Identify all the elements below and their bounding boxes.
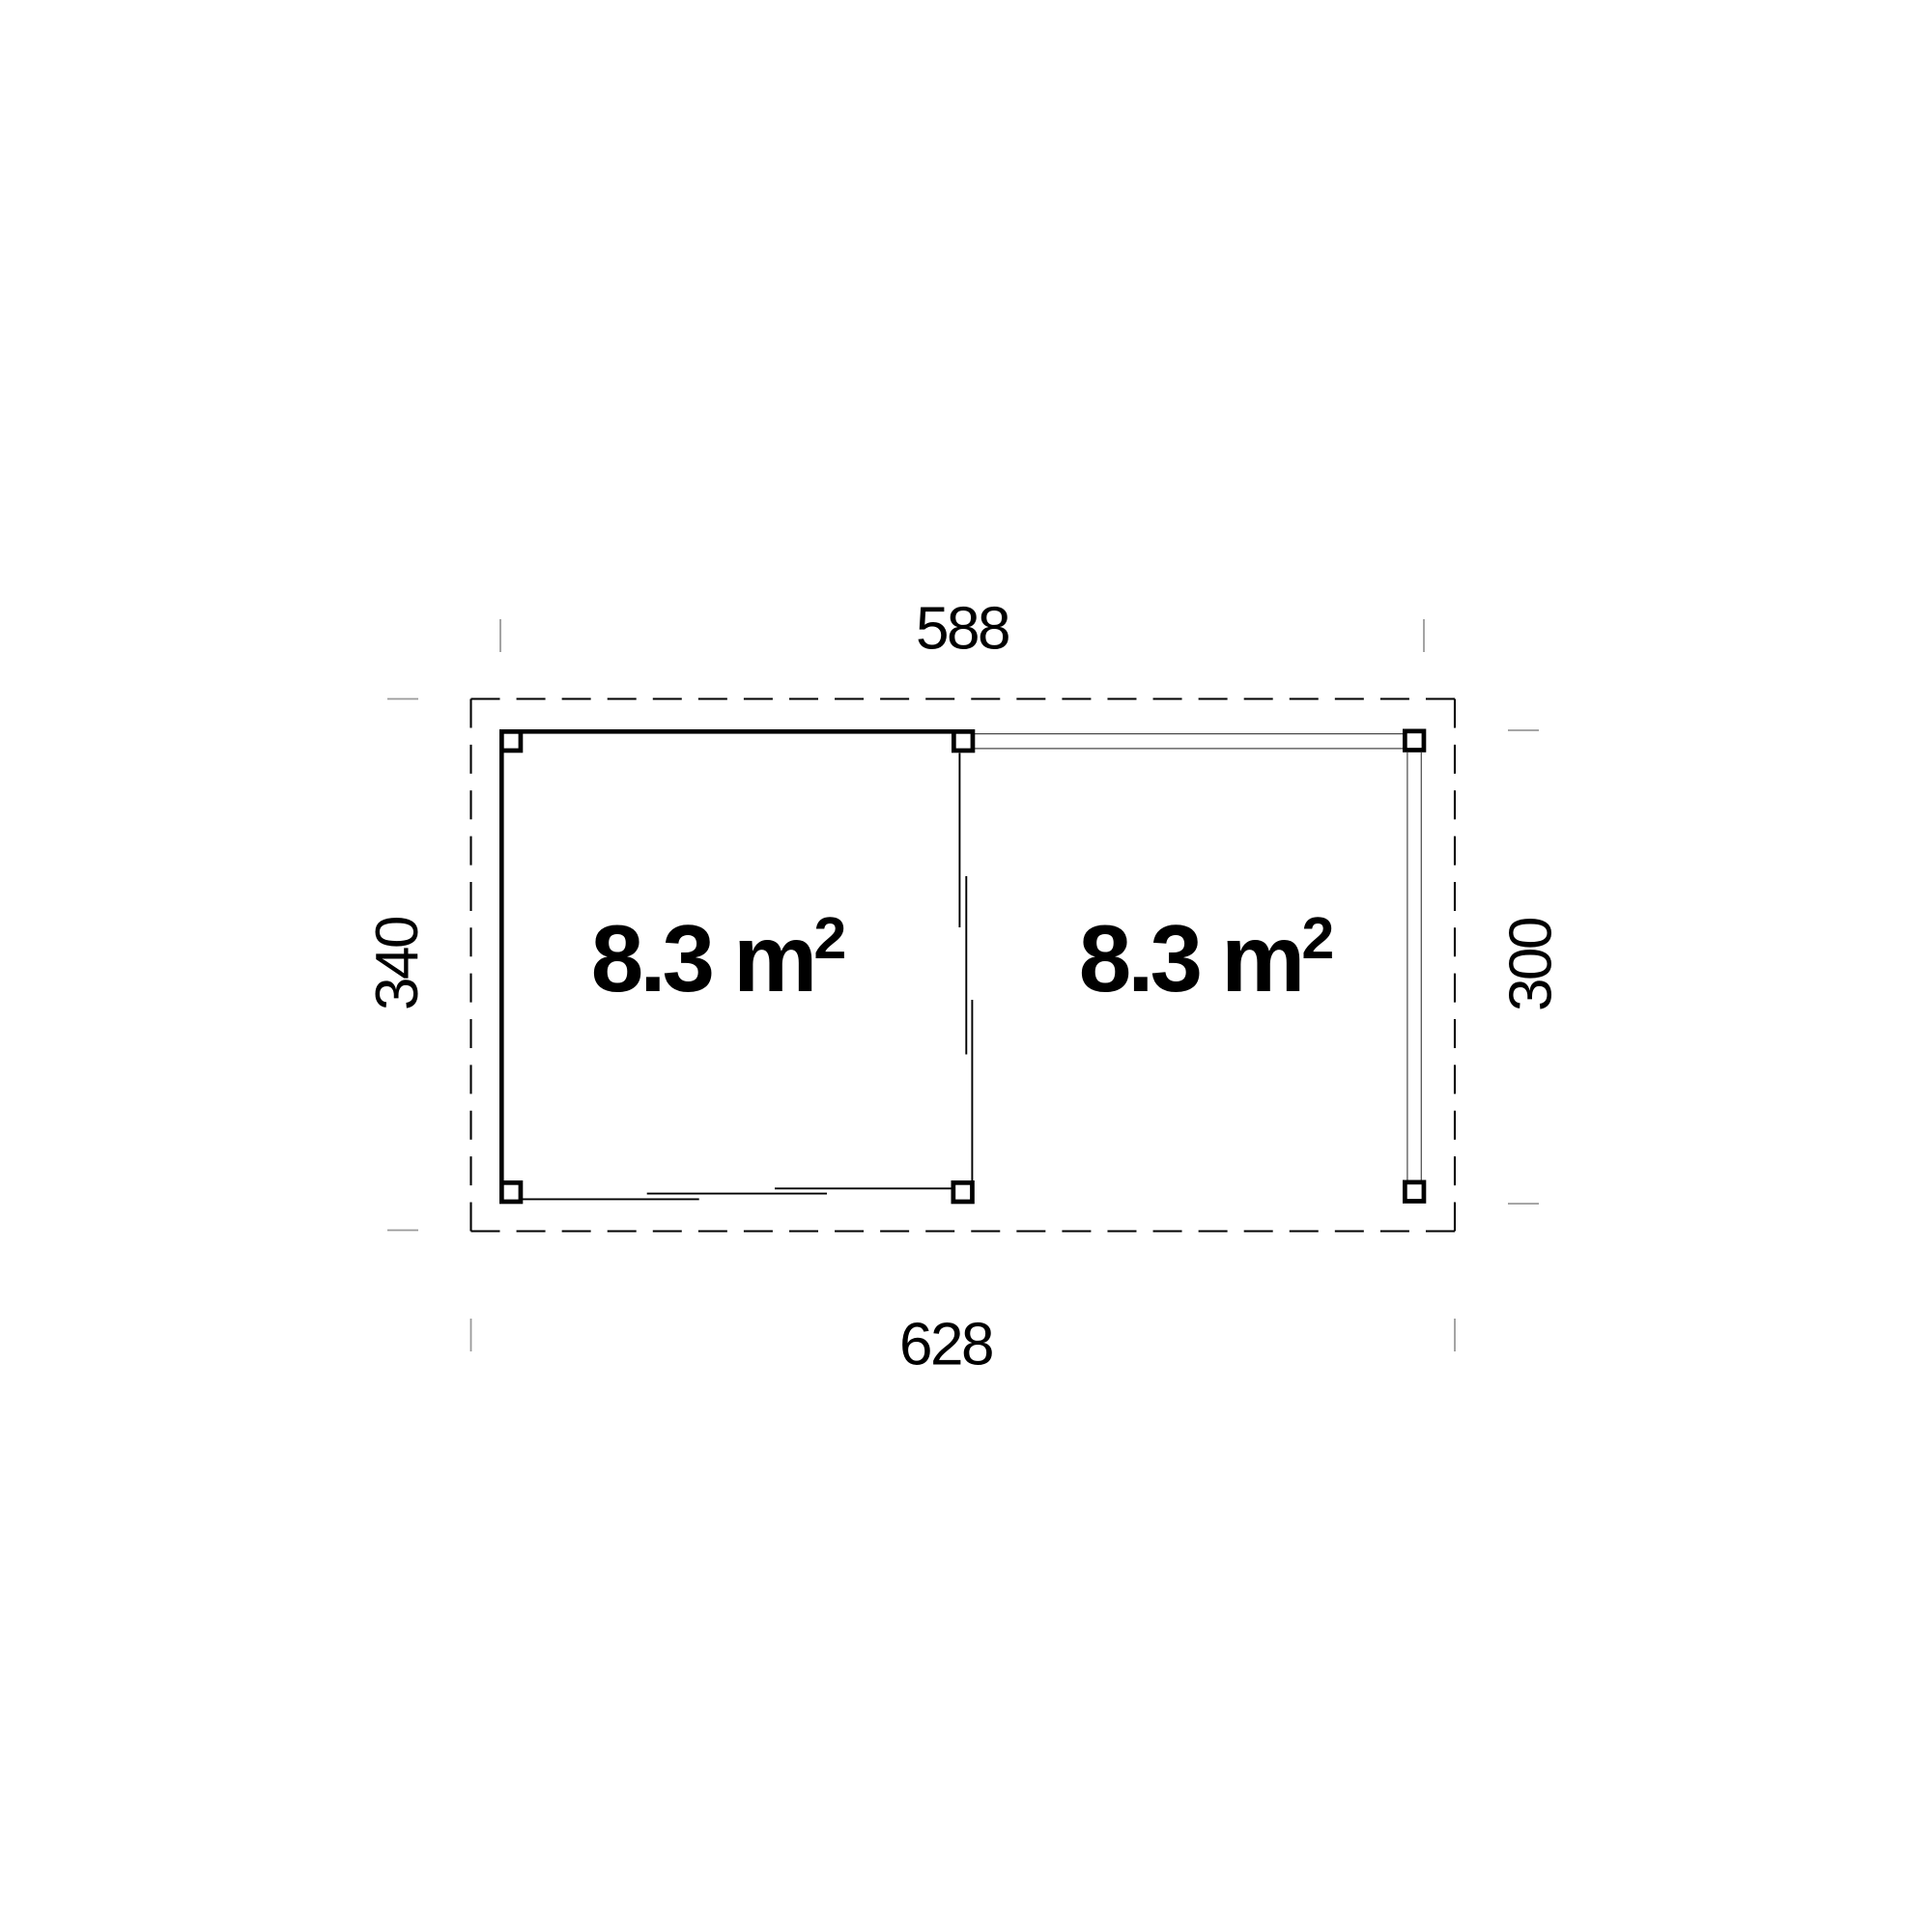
svg-text:340: 340: [364, 917, 431, 1010]
svg-text:8.3 m2: 8.3 m2: [591, 905, 845, 1011]
svg-text:588: 588: [916, 596, 1009, 663]
svg-text:8.3 m2: 8.3 m2: [1079, 905, 1333, 1011]
svg-text:628: 628: [899, 1312, 992, 1378]
svg-text:300: 300: [1498, 918, 1565, 1011]
